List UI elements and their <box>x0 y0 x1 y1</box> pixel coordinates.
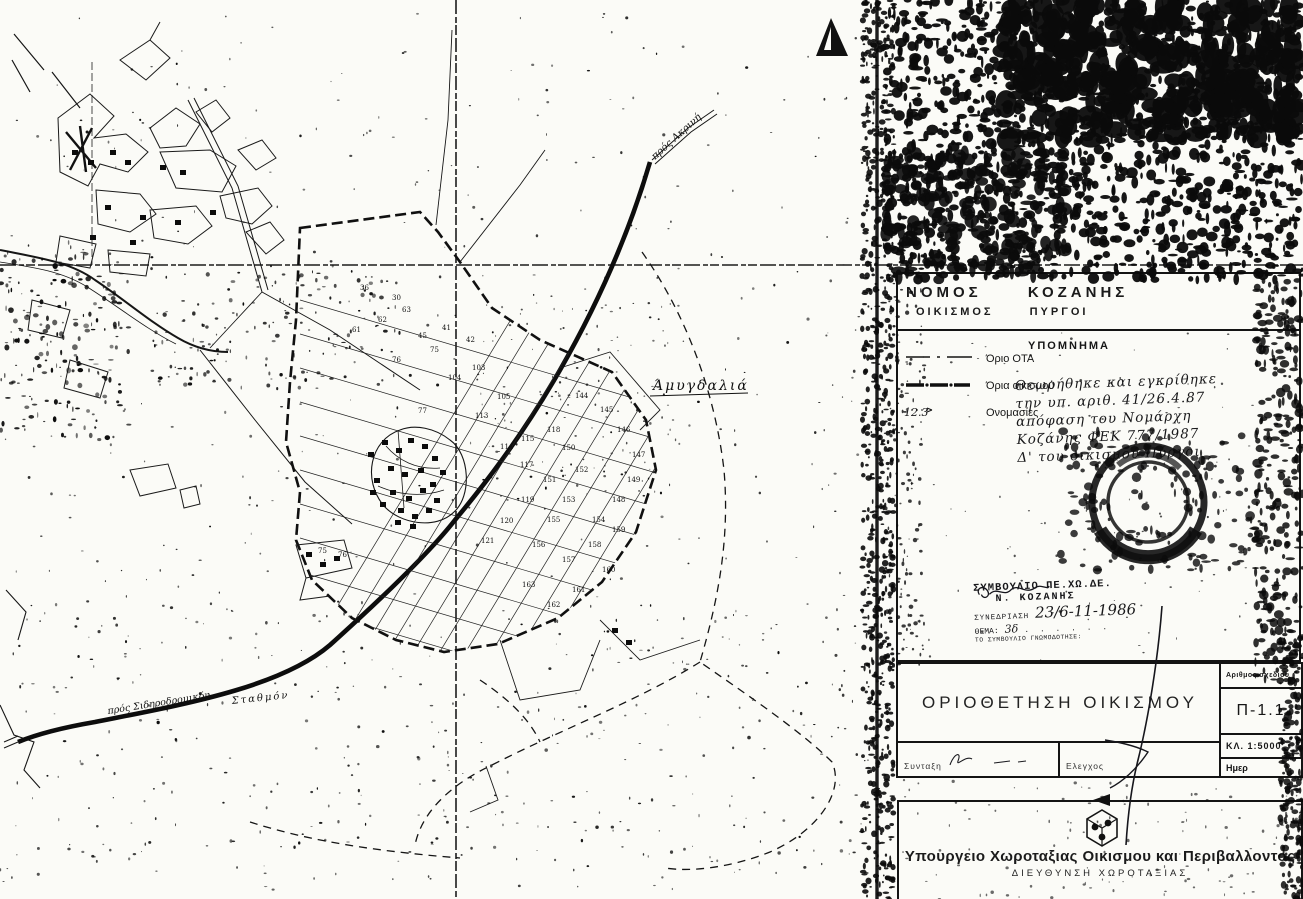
drafting-signature <box>898 743 1048 773</box>
legend-title: ΥΠΟΜΝΗΜΑ <box>1028 340 1110 352</box>
drawing-number: Π-1.1 <box>1221 689 1301 735</box>
parcel-number: 121 <box>481 537 494 545</box>
parcel-mesh <box>300 288 868 752</box>
parcel-number: 103 <box>472 364 485 372</box>
drawing-title: ΟΡΙΟΘΕΤΗΣΗ ΟΙΚΙΣΜΟΥ <box>898 664 1219 741</box>
parcel-number: 120 <box>500 517 513 525</box>
parcel-number: 145 <box>600 406 613 414</box>
parcel-number: 144 <box>575 392 589 400</box>
x-mark <box>66 126 96 172</box>
scale-value: ΚΛ. 1:5000 <box>1221 735 1301 759</box>
parcel-number: 30 <box>392 294 401 302</box>
parcel-number: 114 <box>500 443 514 451</box>
parcel-number: 161 <box>572 586 585 594</box>
settlement-boundary <box>286 212 656 652</box>
parcel-number: 157 <box>562 556 575 564</box>
parcel-number: 115 <box>521 435 534 443</box>
parcel-number: 75 <box>430 346 439 354</box>
legend-label-ota: Όριο ΟΤΑ <box>986 353 1034 365</box>
parcel-number: 158 <box>588 541 601 549</box>
parcel-number: 76 <box>338 551 347 559</box>
parcel-number: 152 <box>575 466 588 474</box>
parcel-number: 105 <box>497 393 510 401</box>
handwritten-approval-note: Θεωρήθηκε και εγκρίθηκε την υπ. αριθ. 41… <box>1015 367 1303 467</box>
parcel-number: 162 <box>547 601 560 609</box>
names-symbol: 12.3 <box>904 406 976 419</box>
stream <box>0 34 228 788</box>
parcel-number: 104 <box>448 374 462 382</box>
ministry-box: Υπουργειο Χωροταξιας Οικισμου και Περιβα… <box>897 800 1303 899</box>
parcel-number: 42 <box>466 336 475 344</box>
parcel-number: 147 <box>632 451 645 459</box>
date-label: Ημερ <box>1221 759 1301 776</box>
north-arrow-icon <box>816 18 848 56</box>
panel-header-divider <box>896 272 1301 331</box>
parcel-number: 153 <box>562 496 575 504</box>
scanned-map-sheet: Άμυγδαλιά πρός Ακρινή πρός Σιδηροδρομικό… <box>0 0 1303 899</box>
title-block: ΟΡΙΟΘΕΤΗΣΗ ΟΙΚΙΣΜΟΥ Συνταξη Ελεγχος Αριθ… <box>896 662 1303 778</box>
parcel-number: 77 <box>418 407 427 415</box>
parcel-number: 151 <box>543 476 556 484</box>
parcel-number: 118 <box>547 426 560 434</box>
ministry-department: ΔΙΕΥΘΥΝΣΗ ΧΩΡΟΤΑΞΙΑΣ <box>899 868 1301 879</box>
parcel-number: 146 <box>617 426 631 434</box>
parcel-number: 159 <box>612 526 625 534</box>
main-road <box>18 162 650 742</box>
ministry-logo-icon <box>1084 808 1120 848</box>
parcel-number: 156 <box>532 541 546 549</box>
parcel-number: 75 <box>318 547 327 555</box>
field-outlines <box>470 352 700 812</box>
parcel-number: 119 <box>521 496 534 504</box>
parcel-number: 36 <box>360 284 369 292</box>
stamp-topic-value: 3δ <box>1004 622 1018 635</box>
settlement-title: ΟΙΚΙΣΜΟΣ ΠΥΡΓΟΙ <box>916 306 1088 318</box>
parcel-number: 76 <box>392 356 401 364</box>
council-stamp: ΣΥΜΒΟΥΛΙΟ ΠΕ.ΧΩ.ΔΕ. Ν. ΚΟΖΑΝΗΣ ΣΥΝΕΔΡΙΑΣ… <box>973 577 1137 644</box>
road-label-bottom: πρός Σιδηροδρομικόν <box>106 690 211 717</box>
parcel-number: 62 <box>378 316 387 324</box>
prefecture-title: ΝΟΜΟΣ ΚΟΖΑΝΗΣ <box>906 284 1128 301</box>
parcel-number: 63 <box>402 306 411 314</box>
road-label-top: πρός Ακρινή <box>649 112 704 163</box>
parcel-number: 149 <box>627 476 640 484</box>
parcel-number: 148 <box>612 496 625 504</box>
parcel-number: 160 <box>602 566 615 574</box>
drawing-number-label: Αριθμος σχεδιου <box>1221 664 1301 689</box>
parcel-number: 163 <box>522 581 535 589</box>
ministry-name: Υπουργειο Χωροταξιας Οικισμου και Περιβα… <box>899 848 1301 865</box>
village-road <box>188 30 545 524</box>
parcel-number: 155 <box>547 516 560 524</box>
parcel-number: 113 <box>475 412 488 420</box>
parcel-number: 45 <box>418 332 427 340</box>
stamp-session-date: 23/6-11-1986 <box>1035 600 1137 622</box>
parcel-number: 61 <box>352 326 361 334</box>
check-label: Ελεγχος <box>1066 761 1104 771</box>
stamp-signature <box>973 580 1052 603</box>
parcel-number: 41 <box>442 324 451 332</box>
buildings <box>72 150 632 645</box>
area-label: Άμυγδαλιά <box>651 378 749 394</box>
parcel-number: 150 <box>562 444 575 452</box>
parcel-number: 154 <box>592 516 606 524</box>
parcel-numbers: 7710410310511311411511711815015115215315… <box>318 284 645 609</box>
station-label: Σταθμόν <box>230 690 290 707</box>
parcel-number: 117 <box>520 461 533 469</box>
